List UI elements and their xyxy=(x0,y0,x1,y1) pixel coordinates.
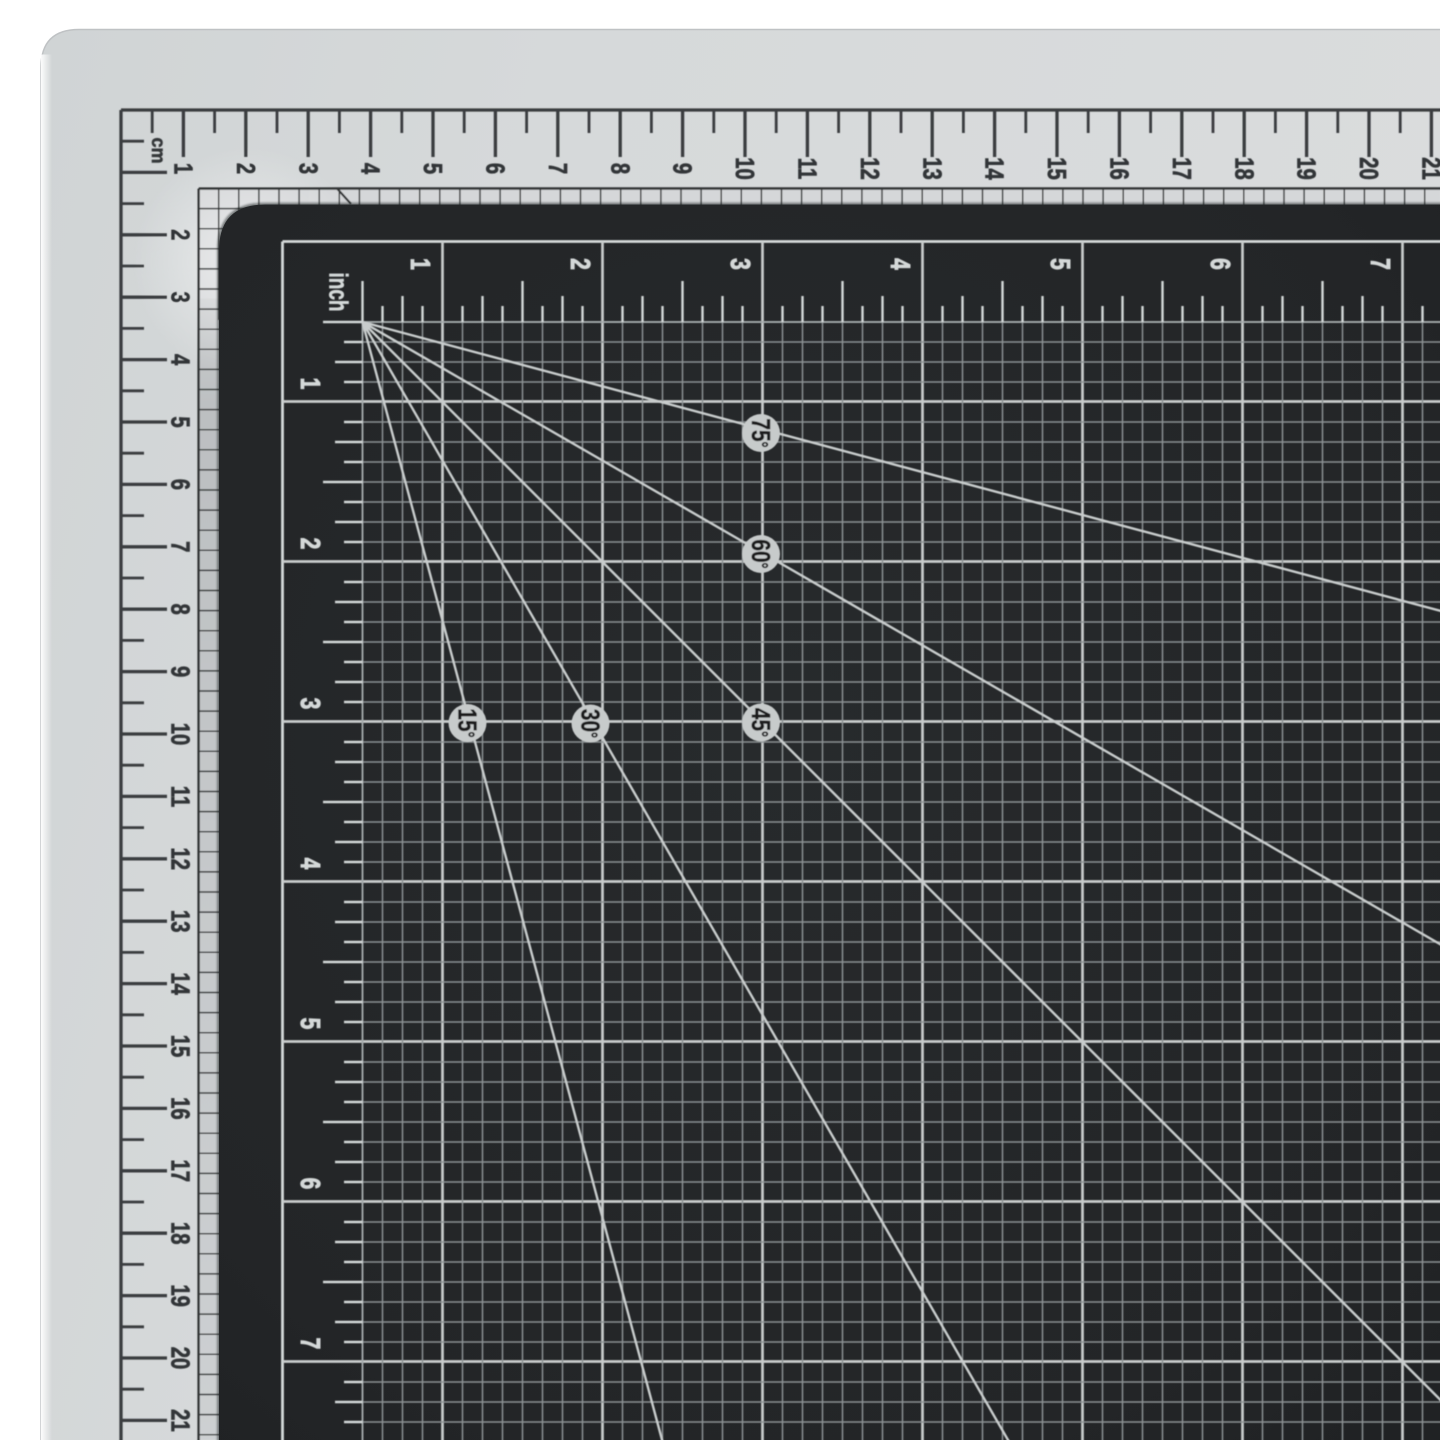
svg-text:8: 8 xyxy=(606,163,635,174)
svg-text:5: 5 xyxy=(166,416,195,427)
svg-text:45°: 45° xyxy=(747,708,776,737)
svg-text:20: 20 xyxy=(1355,157,1384,180)
svg-text:12: 12 xyxy=(855,157,884,180)
svg-text:10: 10 xyxy=(166,723,195,746)
svg-text:6: 6 xyxy=(481,163,510,174)
svg-text:2: 2 xyxy=(231,163,260,174)
svg-text:9: 9 xyxy=(668,163,697,174)
svg-text:7: 7 xyxy=(1364,258,1395,270)
svg-text:5: 5 xyxy=(294,1018,325,1030)
svg-text:7: 7 xyxy=(294,1338,325,1350)
svg-text:1: 1 xyxy=(294,378,325,390)
svg-text:3: 3 xyxy=(166,292,195,303)
svg-text:60°: 60° xyxy=(747,539,776,568)
svg-text:10: 10 xyxy=(731,157,760,180)
svg-text:20: 20 xyxy=(166,1347,195,1370)
svg-text:4: 4 xyxy=(884,258,915,270)
svg-text:16: 16 xyxy=(1105,157,1134,180)
svg-text:15: 15 xyxy=(1043,157,1072,180)
svg-text:7: 7 xyxy=(543,163,572,174)
svg-text:18: 18 xyxy=(1230,157,1259,180)
svg-text:4: 4 xyxy=(356,163,385,174)
svg-text:3: 3 xyxy=(294,163,323,174)
svg-text:15°: 15° xyxy=(453,708,482,737)
svg-text:30°: 30° xyxy=(576,709,605,738)
svg-text:8: 8 xyxy=(166,604,195,615)
svg-text:11: 11 xyxy=(793,158,822,179)
svg-text:17: 17 xyxy=(166,1160,195,1183)
svg-text:19: 19 xyxy=(1292,157,1321,180)
svg-text:1: 1 xyxy=(169,163,198,174)
svg-text:21: 21 xyxy=(1417,157,1440,180)
svg-text:14: 14 xyxy=(166,972,195,995)
svg-text:1: 1 xyxy=(404,258,435,270)
svg-text:3: 3 xyxy=(294,698,325,710)
svg-text:9: 9 xyxy=(166,666,195,677)
svg-text:6: 6 xyxy=(294,1178,325,1190)
svg-text:15: 15 xyxy=(166,1035,195,1058)
svg-text:16: 16 xyxy=(166,1097,195,1120)
svg-text:7: 7 xyxy=(166,541,195,552)
svg-text:19: 19 xyxy=(166,1284,195,1307)
svg-text:13: 13 xyxy=(918,157,947,180)
svg-text:14: 14 xyxy=(980,157,1009,180)
svg-text:12: 12 xyxy=(166,848,195,871)
svg-text:2: 2 xyxy=(294,538,325,550)
svg-text:inch: inch xyxy=(324,272,354,311)
svg-text:4: 4 xyxy=(294,858,325,870)
svg-text:17: 17 xyxy=(1167,157,1196,180)
svg-text:18: 18 xyxy=(166,1222,195,1245)
svg-text:3: 3 xyxy=(724,258,755,270)
svg-text:13: 13 xyxy=(166,910,195,933)
svg-text:5: 5 xyxy=(419,163,448,174)
svg-text:75°: 75° xyxy=(747,418,776,447)
svg-text:2: 2 xyxy=(564,258,595,270)
svg-text:2: 2 xyxy=(166,229,195,240)
svg-text:11: 11 xyxy=(166,786,195,807)
svg-text:6: 6 xyxy=(166,479,195,490)
svg-text:cm: cm xyxy=(148,137,170,163)
svg-text:21: 21 xyxy=(166,1409,195,1432)
svg-text:6: 6 xyxy=(1204,258,1235,270)
svg-text:4: 4 xyxy=(166,354,195,365)
svg-text:5: 5 xyxy=(1044,258,1075,270)
